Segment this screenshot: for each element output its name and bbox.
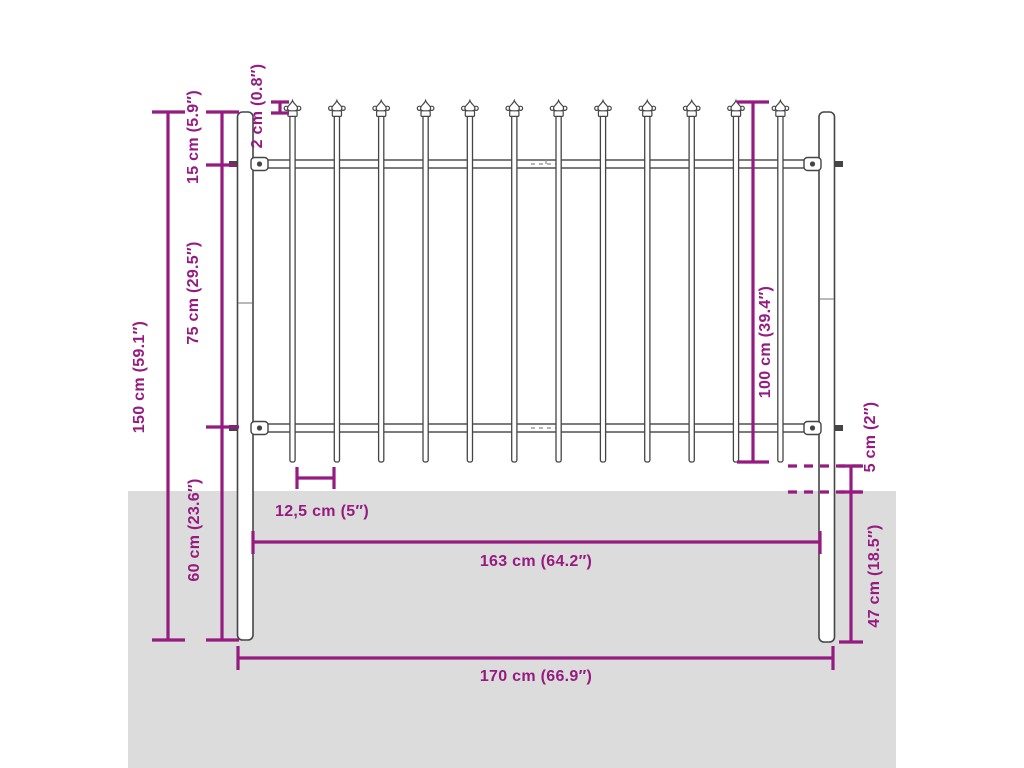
fence-post-left	[238, 112, 254, 640]
dim-label-ground-clearance: 5 cm (2″)	[863, 402, 879, 473]
measure-panel-height	[737, 102, 769, 462]
dim-label-below-rail-section: 60 cm (23.6″)	[187, 478, 203, 581]
dim-label-panel-width: 163 cm (64.2″)	[480, 554, 592, 570]
fence-bars	[284, 101, 789, 463]
measure-bar-spacing	[297, 467, 334, 489]
dim-label-total-width: 170 cm (66.9″)	[480, 669, 592, 685]
dim-label-upper-section: 75 cm (29.5″)	[186, 241, 202, 344]
dim-label-total-height: 150 cm (59.1″)	[132, 321, 148, 433]
dim-label-buried-depth: 47 cm (18.5″)	[867, 524, 883, 627]
dim-label-bar-spacing: 12,5 cm (5″)	[275, 504, 369, 520]
rail-brackets	[229, 158, 843, 435]
diagram-canvas: 150 cm (59.1″) 15 cm (5.9″) 75 cm (29.5″…	[0, 0, 1024, 768]
dim-label-top-offset: 15 cm (5.9″)	[186, 90, 202, 184]
fence-post-right	[819, 112, 835, 642]
fence-diagram-svg	[0, 0, 1024, 768]
measure-ground-clearance	[839, 466, 863, 492]
dim-label-panel-height: 100 cm (39.4″)	[758, 286, 774, 398]
dim-label-spear-tip-height: 2 cm (0.8″)	[250, 64, 266, 149]
